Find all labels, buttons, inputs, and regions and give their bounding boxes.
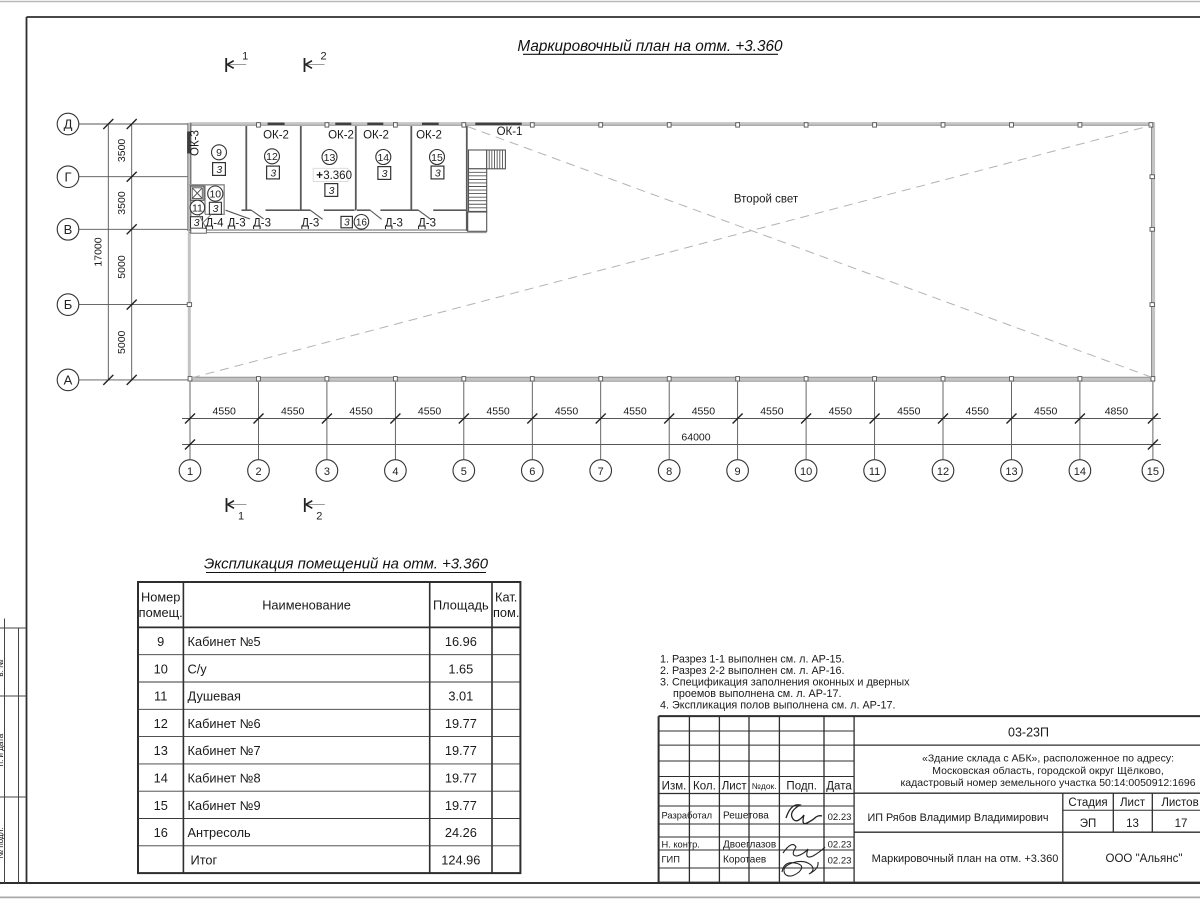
svg-text:Б: Б: [64, 297, 73, 312]
svg-text:в. №: в. №: [0, 659, 5, 677]
svg-text:1: 1: [238, 511, 244, 523]
svg-text:В: В: [64, 222, 73, 237]
svg-text:2: 2: [320, 51, 326, 63]
svg-text:Лист: Лист: [1120, 797, 1146, 809]
svg-text:124.96: 124.96: [441, 852, 480, 867]
svg-text:3: 3: [382, 168, 388, 180]
svg-text:ОК-3: ОК-3: [190, 130, 202, 156]
svg-text:ОК-1: ОК-1: [497, 126, 523, 138]
svg-text:3: 3: [270, 168, 276, 180]
svg-text:Д-3: Д-3: [385, 218, 403, 230]
svg-text:5000: 5000: [116, 330, 128, 354]
svg-text:4550: 4550: [966, 406, 990, 418]
svg-text:3: 3: [329, 185, 335, 197]
svg-text:Д-4: Д-4: [205, 218, 224, 230]
svg-text:ИП Рябов Владимир Владимирович: ИП Рябов Владимир Владимирович: [867, 812, 1048, 824]
svg-text:19.77: 19.77: [445, 798, 477, 813]
svg-text:проемов выполнена см. л. АР-17: проемов выполнена см. л. АР-17.: [673, 688, 842, 700]
svg-text:Д-3: Д-3: [418, 218, 436, 230]
svg-text:11: 11: [869, 466, 880, 478]
svg-text:3.01: 3.01: [448, 689, 473, 704]
svg-text:19.77: 19.77: [445, 716, 477, 731]
svg-text:12: 12: [154, 716, 168, 731]
svg-text:3: 3: [344, 218, 350, 229]
svg-text:19.77: 19.77: [445, 743, 477, 758]
svg-text:17: 17: [1175, 818, 1188, 830]
svg-text:16: 16: [154, 825, 168, 840]
svg-text:Д-3: Д-3: [228, 218, 246, 230]
svg-text:№док.: №док.: [752, 781, 777, 791]
svg-text:Разработал: Разработал: [662, 811, 713, 821]
svg-text:19.77: 19.77: [445, 771, 477, 786]
svg-text:13: 13: [1126, 818, 1139, 830]
svg-text:15: 15: [154, 798, 168, 813]
svg-text:пом.: пом.: [493, 605, 519, 620]
svg-text:ГИП: ГИП: [662, 855, 680, 865]
svg-text:Маркировочный план на отм. +3.: Маркировочный план на отм. +3.360: [517, 38, 783, 55]
svg-text:3: 3: [213, 203, 219, 215]
svg-text:1.65: 1.65: [448, 661, 473, 676]
svg-text:Кабинет №8: Кабинет №8: [188, 771, 261, 786]
svg-text:6: 6: [529, 466, 535, 478]
svg-text:10: 10: [154, 661, 168, 676]
svg-text:8: 8: [666, 466, 672, 478]
svg-text:С/у: С/у: [188, 661, 208, 676]
svg-text:Итог: Итог: [191, 852, 218, 867]
svg-text:Стадия: Стадия: [1068, 797, 1107, 809]
svg-text:«Здание склада с АБК», располо: «Здание склада с АБК», расположенное по …: [922, 753, 1174, 765]
svg-text:9: 9: [735, 466, 741, 478]
svg-text:3: 3: [435, 168, 441, 180]
svg-text:10: 10: [800, 466, 812, 478]
svg-text:Г: Г: [64, 169, 71, 184]
svg-text:ЭП: ЭП: [1080, 818, 1097, 830]
svg-text:4550: 4550: [349, 406, 373, 418]
svg-text:Решетова: Решетова: [723, 811, 769, 822]
svg-text:помещ.: помещ.: [139, 605, 183, 620]
svg-text:1: 1: [187, 466, 193, 478]
svg-text:3: 3: [194, 217, 200, 229]
svg-text:ОК-2: ОК-2: [363, 130, 389, 142]
svg-text:02.23: 02.23: [828, 856, 852, 867]
svg-text:14: 14: [154, 771, 168, 786]
svg-text:Душевая: Душевая: [188, 689, 242, 704]
svg-text:4: 4: [392, 466, 398, 478]
svg-text:17000: 17000: [93, 237, 105, 266]
svg-text:15: 15: [431, 152, 443, 164]
svg-text:4550: 4550: [760, 406, 784, 418]
svg-text:24.26: 24.26: [445, 825, 477, 840]
svg-text:Наименование: Наименование: [262, 598, 351, 613]
svg-text:Лист: Лист: [722, 781, 748, 793]
svg-text:12: 12: [266, 151, 278, 163]
svg-text:4550: 4550: [623, 406, 647, 418]
svg-text:13: 13: [154, 743, 168, 758]
svg-text:03-23П: 03-23П: [1008, 726, 1049, 740]
svg-text:4550: 4550: [692, 406, 716, 418]
svg-text:4. Экспликация полов выполнена: 4. Экспликация полов выполнена см. л. АР…: [660, 700, 895, 712]
svg-text:11: 11: [192, 202, 203, 214]
svg-text:11: 11: [154, 689, 167, 704]
svg-text:10: 10: [209, 189, 221, 201]
svg-text:4550: 4550: [829, 406, 853, 418]
svg-text:14: 14: [1074, 466, 1086, 478]
svg-text:2: 2: [316, 511, 322, 523]
svg-text:Второй свет: Второй свет: [734, 194, 799, 206]
svg-text:Изм.: Изм.: [662, 781, 687, 793]
svg-text:Антресоль: Антресоль: [188, 825, 252, 840]
svg-text:3.360: 3.360: [323, 170, 352, 182]
svg-text:3. Спецификация заполнения око: 3. Спецификация заполнения оконных и две…: [660, 677, 910, 689]
svg-text:ОК-2: ОК-2: [328, 130, 354, 142]
svg-text:Д-3: Д-3: [301, 218, 319, 230]
svg-text:4550: 4550: [1034, 406, 1058, 418]
svg-text:02.23: 02.23: [828, 840, 852, 851]
svg-text:4550: 4550: [213, 406, 237, 418]
svg-text:Двоеглазов: Двоеглазов: [723, 840, 776, 851]
svg-text:4550: 4550: [897, 406, 921, 418]
svg-text:4550: 4550: [555, 406, 579, 418]
svg-text:Подп.: Подп.: [786, 781, 817, 793]
svg-text:4850: 4850: [1105, 406, 1129, 418]
svg-text:Кабинет №9: Кабинет №9: [188, 798, 261, 813]
svg-text:ОК-2: ОК-2: [416, 130, 442, 142]
svg-text:А: А: [64, 373, 73, 388]
svg-text:15: 15: [1147, 466, 1159, 478]
svg-text:02.23: 02.23: [828, 812, 852, 823]
svg-text:Московская область, городской: Московская область, городской округ Щёлк…: [932, 765, 1164, 777]
svg-text:16.96: 16.96: [445, 634, 477, 649]
svg-text:Номер: Номер: [141, 590, 180, 605]
svg-text:1: 1: [242, 51, 248, 63]
svg-text:Коротаев: Коротаев: [723, 855, 766, 866]
svg-text:ООО "Альянс": ООО "Альянс": [1106, 853, 1183, 865]
svg-text:Д-3: Д-3: [253, 218, 271, 230]
svg-text:13: 13: [324, 152, 336, 164]
svg-text:Кабинет №5: Кабинет №5: [188, 634, 261, 649]
svg-text:№ подл.: № подл.: [0, 828, 5, 859]
svg-text:+: +: [316, 170, 323, 182]
svg-text:Д: Д: [64, 117, 73, 132]
svg-text:Листов: Листов: [1161, 797, 1198, 809]
svg-text:п. и дата: п. и дата: [0, 733, 5, 766]
svg-text:3500: 3500: [116, 191, 128, 215]
svg-text:Кабинет №6: Кабинет №6: [188, 716, 261, 731]
svg-text:ОК-2: ОК-2: [263, 130, 289, 142]
svg-text:2: 2: [255, 466, 261, 478]
svg-text:16: 16: [356, 218, 368, 229]
svg-text:3500: 3500: [116, 139, 128, 163]
svg-text:12: 12: [937, 466, 949, 478]
svg-text:5: 5: [461, 466, 467, 478]
svg-text:Н. контр.: Н. контр.: [662, 840, 700, 850]
svg-text:Дата: Дата: [826, 781, 852, 793]
svg-text:Кабинет №7: Кабинет №7: [188, 743, 261, 758]
svg-text:13: 13: [1005, 466, 1017, 478]
svg-text:14: 14: [377, 152, 389, 164]
svg-text:9: 9: [216, 147, 222, 159]
svg-text:Маркировочный план на отм. +3.: Маркировочный план на отм. +3.360: [872, 853, 1059, 865]
svg-text:Площадь: Площадь: [433, 598, 489, 613]
svg-text:4550: 4550: [281, 406, 305, 418]
svg-text:4550: 4550: [486, 406, 510, 418]
svg-text:4550: 4550: [418, 406, 442, 418]
svg-text:5000: 5000: [116, 255, 128, 279]
svg-text:3: 3: [216, 164, 222, 176]
svg-text:Кол.: Кол.: [693, 781, 716, 793]
svg-text:кадастровый номер земельного у: кадастровый номер земельного участка 50:…: [900, 777, 1195, 789]
svg-text:2. Разрез 2-2 выполнен см. л.: 2. Разрез 2-2 выполнен см. л. АР-16.: [660, 665, 844, 677]
svg-text:3: 3: [324, 466, 330, 478]
svg-text:1. Разрез 1-1 выполнен см. л.: 1. Разрез 1-1 выполнен см. л. АР-15.: [660, 654, 844, 666]
svg-text:64000: 64000: [681, 432, 710, 444]
svg-text:Кат.: Кат.: [495, 590, 517, 605]
svg-text:Экспликация помещений на отм.: Экспликация помещений на отм. +3.360: [204, 557, 489, 573]
svg-text:7: 7: [598, 466, 604, 478]
svg-text:9: 9: [157, 634, 164, 649]
